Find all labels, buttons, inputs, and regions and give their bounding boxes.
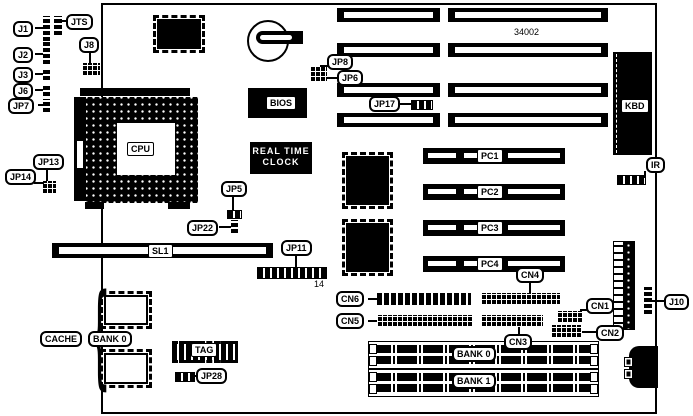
label-jp11: JP11 [281,240,312,256]
jp13-jp14-jumper [42,181,56,194]
label-kbd: KBD [621,99,649,113]
simm-clip [369,372,377,382]
jp17-header [411,100,433,110]
pointer-cn4 [529,282,531,293]
kbd-chip-pin1-mark [616,54,617,153]
isa-slot-4-segment-a [337,113,440,127]
label-jts: JTS [66,14,93,30]
pointer-j8 [89,52,91,64]
jp28-jumper [175,372,195,382]
board-number: 34002 [514,27,539,37]
label-cn5: CN5 [336,313,364,329]
cn5-ide-connector [377,315,472,327]
label-cn3: CN3 [504,334,532,350]
jts-header [54,16,62,35]
jp7-header [43,99,50,112]
cpu-zif-handle [77,141,83,168]
isa-slot-1-segment-a [337,8,440,22]
jp11-header [257,267,327,279]
simm-clip [369,344,377,354]
label-cache-bank0: BANK 0 [88,331,132,347]
label-j6: J6 [13,83,33,99]
motherboard-diagram: J1 J2 J3 J6 JP7 JTS J8 JP13 JP14 CPU BIO… [0,0,693,416]
pointer-jp5 [232,196,234,210]
label-j10: J10 [664,294,689,310]
simm-clip [590,344,598,354]
chipset-chip-1 [342,152,393,209]
simm-clip [369,384,377,394]
label-j8: J8 [79,37,99,53]
label-cn1: CN1 [586,298,614,314]
label-jp5: JP5 [221,181,247,197]
cn6-floppy-connector [377,293,471,305]
pointer-jp6 [327,77,337,79]
j10-header [644,287,652,314]
label-simm-bank0: BANK 0 [452,346,496,362]
label-jp14: JP14 [5,169,36,185]
jp5-jumper [227,210,242,219]
label-ir: IR [646,157,665,173]
label-pc2: PC2 [477,185,503,199]
label-pc1: PC1 [477,149,503,163]
power-connector-pins [614,242,623,329]
label-cn4: CN4 [516,267,544,283]
j8-jumper [82,63,100,76]
isa-slot-2-segment-b [448,43,608,57]
isa-slot-4-segment-b [448,113,608,127]
label-jp7: JP7 [8,98,34,114]
simm-clip [590,356,598,366]
label-jp17: JP17 [369,96,400,112]
label-pc3: PC3 [477,221,503,235]
j3-header [43,68,50,80]
label-cn2: CN2 [596,325,624,341]
label-jp6: JP6 [337,70,363,86]
clock-generator-chip [153,15,205,53]
cpu-socket-foot-left [85,202,104,209]
cn2-jumper [551,325,582,338]
battery-clip-slot [260,35,292,40]
chipset-chip-2 [342,219,393,276]
label-cn6: CN6 [336,291,364,307]
simm-clip [590,384,598,394]
pointer-cn5 [368,320,377,322]
pointer-ir [644,171,646,178]
label-jp28: JP28 [196,368,227,384]
label-jp8: JP8 [327,54,353,70]
cpu-socket-foot-right [168,202,190,209]
ir-header [617,175,646,185]
jp22-jumper [231,220,238,233]
isa-slot-3-segment-b [448,83,608,97]
cn1-jumper [557,311,583,323]
j6-header [43,84,50,96]
cn4-connector [481,293,560,305]
label-j1: J1 [13,21,33,37]
label-bios: BIOS [266,96,296,110]
pointer-jp14 [34,182,44,184]
pointer-jp7 [38,104,43,106]
cpu-socket-topbar [80,88,190,96]
isa-slot-1-segment-b [448,8,608,22]
label-rtc-line2: CLOCK [250,157,312,168]
simm-clip [369,356,377,366]
jp11-pin14-label: 14 [314,279,324,289]
label-pc4: PC4 [477,257,503,271]
pointer-j2 [35,53,43,55]
label-jp13: JP13 [33,154,64,170]
label-cpu: CPU [127,142,154,156]
label-rtc-line1: REAL TIME [250,146,312,157]
label-j2: J2 [13,47,33,63]
din-pin-2 [624,369,633,379]
isa-slot-2-segment-a [337,43,440,57]
cn3-connector [481,315,543,327]
j2-header [43,42,50,64]
power-connector [613,241,635,330]
label-tag: TAG [191,343,217,357]
din-pin-1 [624,357,633,367]
pointer-j6 [35,89,43,91]
label-j3: J3 [13,67,33,83]
simm-clip [590,372,598,382]
power-connector-dots [625,242,634,329]
pointer-cn6 [368,298,377,300]
keyboard-din-connector [629,346,658,388]
jp8-jp6-jumper [310,67,327,82]
label-jp22: JP22 [187,220,218,236]
pointer-jp22 [219,226,231,228]
pointer-cn2 [582,331,596,333]
pointer-jp17 [400,103,411,105]
label-cache: CACHE [40,331,82,347]
label-simm-bank1: BANK 1 [452,373,496,389]
pointer-jp11 [295,256,297,267]
label-sl1: SL1 [148,244,173,258]
pointer-j3 [35,73,43,75]
pointer-j1 [35,27,43,29]
